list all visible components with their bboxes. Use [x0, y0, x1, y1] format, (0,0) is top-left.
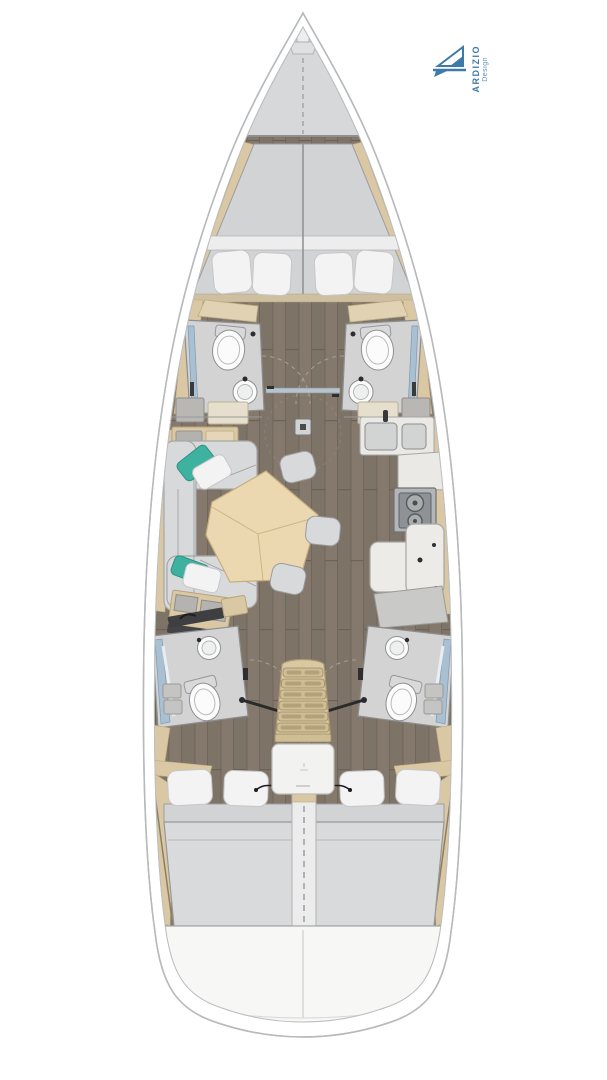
door-handle — [243, 668, 248, 680]
faucet-icon — [383, 410, 388, 422]
transom — [148, 926, 460, 1036]
headboard — [314, 804, 444, 822]
companionway-stairs — [275, 660, 331, 743]
forward-cabin — [186, 136, 420, 302]
cabinet-port — [176, 398, 204, 422]
shower-mixer-icon — [412, 382, 416, 396]
pillow — [167, 769, 213, 806]
v-berth-foot-trim — [186, 294, 420, 302]
pillow — [395, 769, 441, 806]
sink-icon — [197, 637, 221, 660]
ardizio-logo: ARDIZIO Design — [432, 38, 489, 100]
pillow — [339, 770, 384, 807]
pillow — [223, 770, 268, 807]
nav-counter-starboard — [374, 586, 448, 628]
sink-basin — [365, 423, 397, 450]
step-port — [208, 402, 248, 424]
deck-fitting-starboard — [446, 383, 459, 389]
chair — [305, 515, 342, 546]
yacht-deck-plan: ARDIZIO Design — [0, 0, 607, 1080]
sailboat-logo-icon — [432, 44, 468, 84]
logo-brand-text: ARDIZIO — [471, 45, 481, 93]
headboard — [164, 804, 294, 822]
pillow — [211, 249, 253, 294]
double-bed — [164, 822, 294, 926]
forward-cabin-door — [266, 388, 340, 393]
deck-fitting-port — [148, 383, 161, 389]
shower-mixer-icon — [190, 382, 194, 396]
pillow — [314, 252, 354, 296]
door-handle — [358, 668, 363, 680]
pillow — [353, 249, 395, 294]
logo-subtitle-text: Design — [482, 57, 489, 82]
deck-plan-svg — [0, 0, 607, 1080]
double-bed — [314, 822, 444, 926]
sink-basin — [402, 424, 426, 449]
pillow — [252, 252, 292, 296]
logo-text: ARDIZIO Design — [471, 38, 489, 100]
sink-icon — [386, 637, 410, 660]
